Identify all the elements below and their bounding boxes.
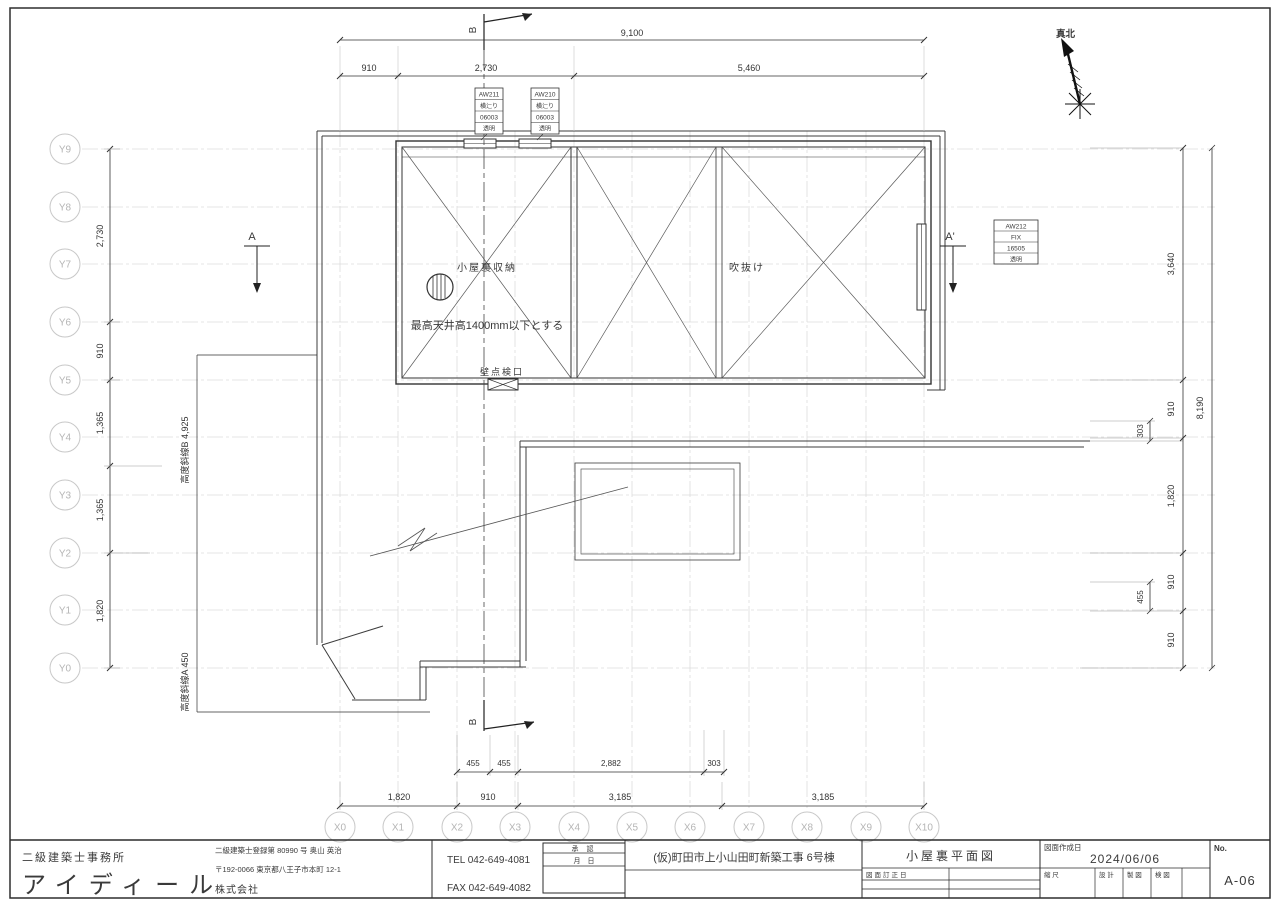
right-sub-dim-455 — [1147, 579, 1153, 614]
aw211-size: 06003 — [480, 115, 498, 122]
pipe-space-hatch — [433, 274, 445, 300]
section-b-bottom-arrowhead — [524, 721, 534, 729]
date-scale-cell-lines — [1040, 868, 1210, 898]
left-extension-lines — [104, 149, 162, 668]
dim-right-overall: 8,190 — [1195, 397, 1205, 420]
grid-label-x1: X1 — [392, 823, 405, 834]
title-block: 二級建築士事務所 アイディール 二級建築士登録第 80990 号 奥山 英治 〒… — [10, 840, 1270, 899]
aw210-glass: 透明 — [539, 125, 551, 133]
grid-label-y6: Y6 — [59, 318, 72, 329]
dim-right-910b: 910 — [1166, 574, 1176, 589]
dim-top-overall: 9,100 — [621, 28, 644, 38]
dim-bottom-2882: 2,882 — [601, 759, 622, 768]
top-dimensions: 9,100 910 2,730 5,460 — [337, 28, 927, 131]
office-type-label: 二級建築士事務所 — [22, 850, 126, 864]
dim-bottom-1820: 1,820 — [388, 792, 411, 802]
grid-label-y5: Y5 — [59, 376, 72, 387]
section-a-prime-label: A' — [945, 231, 954, 243]
dim-left-1365b: 1,365 — [95, 499, 105, 522]
scale-label: 縮 尺 — [1044, 870, 1059, 879]
dim-right-3640: 3,640 — [1166, 253, 1176, 276]
window-tag-aw210: AW210 横辷り 06003 透明 — [531, 88, 559, 140]
grid-label-x7: X7 — [743, 823, 756, 834]
right-overall-dim-line — [1209, 145, 1215, 671]
section-b-top-label: B — [468, 26, 479, 33]
dim-top-5460: 5,460 — [738, 63, 761, 73]
dim-right-910c: 910 — [1166, 632, 1176, 647]
grid-label-x4: X4 — [568, 823, 581, 834]
dim-right-455: 455 — [1136, 590, 1145, 604]
section-b-top-arrowhead — [522, 13, 532, 21]
section-a-arrow — [244, 246, 270, 286]
aw212-type: FIX — [1011, 235, 1022, 242]
north-arrowhead — [1061, 38, 1074, 57]
dim-right-1820: 1,820 — [1166, 485, 1176, 508]
roof-eaves-lines — [317, 131, 945, 645]
company-name: アイディール — [22, 872, 223, 899]
right-dimensions: 3,640 910 1,820 910 910 303 455 8,190 — [1080, 145, 1215, 671]
aw211-glass: 透明 — [483, 125, 495, 133]
grid-label-x6: X6 — [684, 823, 697, 834]
grid-label-x5: X5 — [626, 823, 639, 834]
section-a-label: A — [248, 231, 256, 243]
stamp-design-label: 設 計 — [1099, 870, 1114, 879]
height-slant-b-label: 高度斜線B 4,925 — [179, 416, 190, 483]
sheet-no-label: No. — [1214, 844, 1227, 853]
aw210-size: 06003 — [536, 115, 554, 122]
dim-bottom-3185a: 3,185 — [609, 792, 632, 802]
break-diagonal — [370, 487, 628, 556]
ceiling-height-note: 最高天井高1400mm以下とする — [411, 318, 563, 332]
dim-bottom-303: 303 — [707, 759, 721, 768]
window-tag-aw211: AW211 横辷り 06003 透明 — [475, 88, 503, 140]
grid-label-x0: X0 — [334, 823, 347, 834]
grid-label-y4: Y4 — [59, 433, 72, 444]
grid-label-y1: Y1 — [59, 606, 72, 617]
aw210-number: AW210 — [534, 92, 555, 99]
north-arrow: 真北 — [1056, 28, 1095, 119]
dim-right-910a: 910 — [1166, 401, 1176, 416]
section-a-arrowhead — [253, 283, 261, 293]
bottom-upper-extension-lines — [457, 730, 724, 776]
attic-room-label: 小屋裏収納 — [457, 261, 517, 274]
titleblock-dividers — [432, 840, 1210, 898]
y-grid-bubbles: Y9 Y8 Y7 Y6 Y5 Y4 Y3 Y2 Y1 Y0 — [50, 134, 80, 683]
aw210-type: 横辷り — [536, 102, 554, 110]
void-label: 吹抜け — [729, 261, 765, 274]
compass-star — [1065, 89, 1095, 119]
date-value: 2024/06/06 — [1090, 852, 1160, 866]
dim-left-2730: 2,730 — [95, 225, 105, 248]
grid-label-x3: X3 — [509, 823, 522, 834]
drawing-title: 小屋裏平面図 — [906, 848, 996, 863]
grid-label-y0: Y0 — [59, 664, 72, 675]
stamp-check-label: 検 図 — [1155, 870, 1170, 879]
drawing-sheet: { "north_label": "真北", "grid": { "x_labe… — [0, 0, 1280, 906]
roof-hip-lines — [322, 626, 383, 699]
interior-post-line — [716, 147, 722, 378]
plan-canvas: Y9 Y8 Y7 Y6 Y5 Y4 Y3 Y2 Y1 Y0 X0 X1 X2 X… — [0, 0, 1280, 906]
license-line: 二級建築士登録第 80990 号 奥山 英治 — [215, 845, 342, 855]
grid-label-x2: X2 — [451, 823, 464, 834]
dim-bottom-455a: 455 — [466, 759, 480, 768]
tel-value: TEL 042-649-4081 — [447, 855, 530, 866]
stamp-draft-label: 製 図 — [1127, 870, 1142, 879]
section-marks-a: A A' — [244, 231, 966, 293]
brace-middle-bay — [577, 147, 716, 378]
dim-left-1820: 1,820 — [95, 600, 105, 623]
lower-roof-step-rect-inner — [581, 469, 734, 554]
grid-label-x9: X9 — [860, 823, 873, 834]
grid-label-x8: X8 — [801, 823, 814, 834]
grid-vertical-lines — [340, 131, 924, 808]
approval-label: 承 認 — [572, 844, 597, 853]
grid-label-y2: Y2 — [59, 549, 72, 560]
inspection-port-label: 壁点検口 — [480, 366, 524, 377]
grid-label-y8: Y8 — [59, 203, 72, 214]
aw211-type: 横辷り — [480, 102, 498, 110]
window-tag-aw212: AW212 FIX 16505 透明 — [994, 220, 1038, 264]
break-line — [370, 487, 628, 556]
height-slant-line — [197, 355, 430, 712]
fax-value: FAX 042-649-4082 — [447, 883, 531, 894]
grid-label-y9: Y9 — [59, 145, 72, 156]
section-a-prime-arrow — [940, 246, 966, 286]
dim-bottom-910: 910 — [480, 792, 495, 802]
grid-label-y3: Y3 — [59, 491, 72, 502]
dim-top-2730: 2,730 — [475, 63, 498, 73]
height-slant-a-label: 高度斜線A 450 — [179, 652, 190, 711]
date-label: 図面作成日 — [1044, 842, 1082, 852]
aw211-number: AW211 — [479, 92, 500, 99]
north-label: 真北 — [1056, 28, 1076, 40]
dim-left-1365a: 1,365 — [95, 412, 105, 435]
aw212-size: 16505 — [1007, 246, 1025, 253]
grid-label-x10: X10 — [915, 823, 933, 834]
top-extension-lines — [340, 46, 924, 131]
dim-right-303: 303 — [1136, 424, 1145, 438]
section-b-bottom-label: B — [468, 718, 479, 725]
roof-outline — [317, 131, 1090, 700]
aw212-number: AW212 — [1005, 224, 1026, 231]
right-sub-dim-303 — [1147, 418, 1153, 444]
section-a-prime-arrowhead — [949, 283, 957, 293]
corp-label: 株式会社 — [215, 883, 259, 896]
dim-top-910: 910 — [361, 63, 376, 73]
month-day-label: 月 日 — [574, 857, 595, 865]
project-name: (仮)町田市上小山田町新築工事 6号棟 — [653, 850, 835, 864]
pipe-space-circle — [427, 274, 453, 300]
aw212-glass: 透明 — [1010, 256, 1022, 264]
dim-left-910: 910 — [95, 343, 105, 358]
dim-bottom-455b: 455 — [497, 759, 511, 768]
x-grid-bubbles: X0 X1 X2 X3 X4 X5 X6 X7 X8 X9 X10 — [325, 812, 939, 842]
sheet-no-value: A-06 — [1224, 873, 1255, 888]
revision-label: 図面訂正日 — [866, 870, 909, 879]
lower-roof-step-rect — [575, 463, 740, 560]
address-line: 〒192-0066 東京都八王子市本町 12-1 — [215, 864, 341, 874]
grid-label-y7: Y7 — [59, 260, 72, 271]
roof-step-lines — [352, 441, 1090, 700]
north-arrow-shaft — [1067, 50, 1080, 104]
grid-horizontal-lines — [82, 149, 1215, 668]
dim-bottom-3185b: 3,185 — [812, 792, 835, 802]
